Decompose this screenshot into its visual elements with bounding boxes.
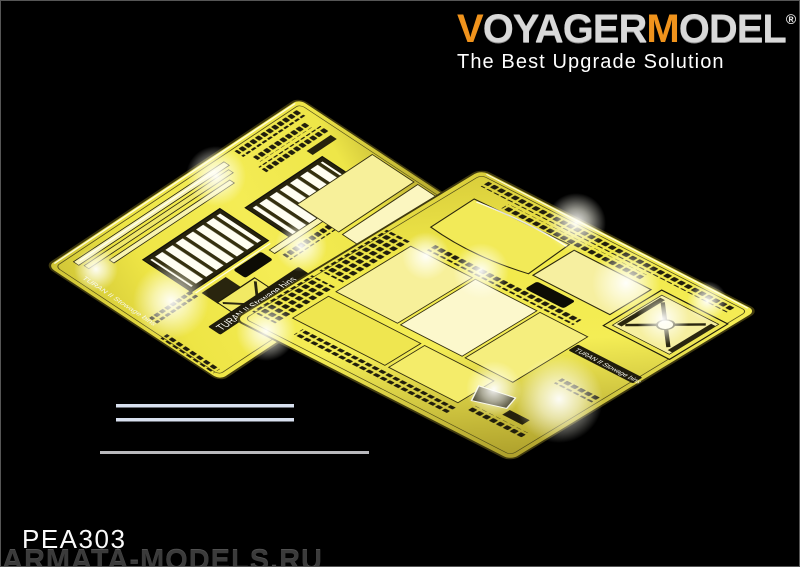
brand-letter-v: V (457, 7, 483, 51)
watermark-text: ARMATA-MODELS.RU (2, 545, 323, 567)
brand-letter-m: M (646, 7, 678, 51)
scale-line-3 (100, 451, 369, 454)
scale-line-1 (116, 404, 294, 408)
scale-line-2 (116, 418, 294, 422)
registered-trademark-symbol: ® (786, 11, 796, 27)
brand-letters-oyager: OYAGER (483, 7, 647, 51)
brand-letters-odel: ODEL (679, 7, 786, 51)
brand-logo: VOYAGERMODEL® The Best Upgrade Solution (457, 9, 793, 72)
photoetch-frets-illustration: TURAN II Stowage bins TURAN II Stowage b… (1, 1, 800, 567)
brand-wordmark: VOYAGERMODEL® (457, 9, 793, 49)
brand-tagline: The Best Upgrade Solution (457, 52, 793, 72)
product-photo-canvas: TURAN II Stowage bins TURAN II Stowage b… (0, 0, 800, 567)
scale-lines (100, 404, 369, 454)
